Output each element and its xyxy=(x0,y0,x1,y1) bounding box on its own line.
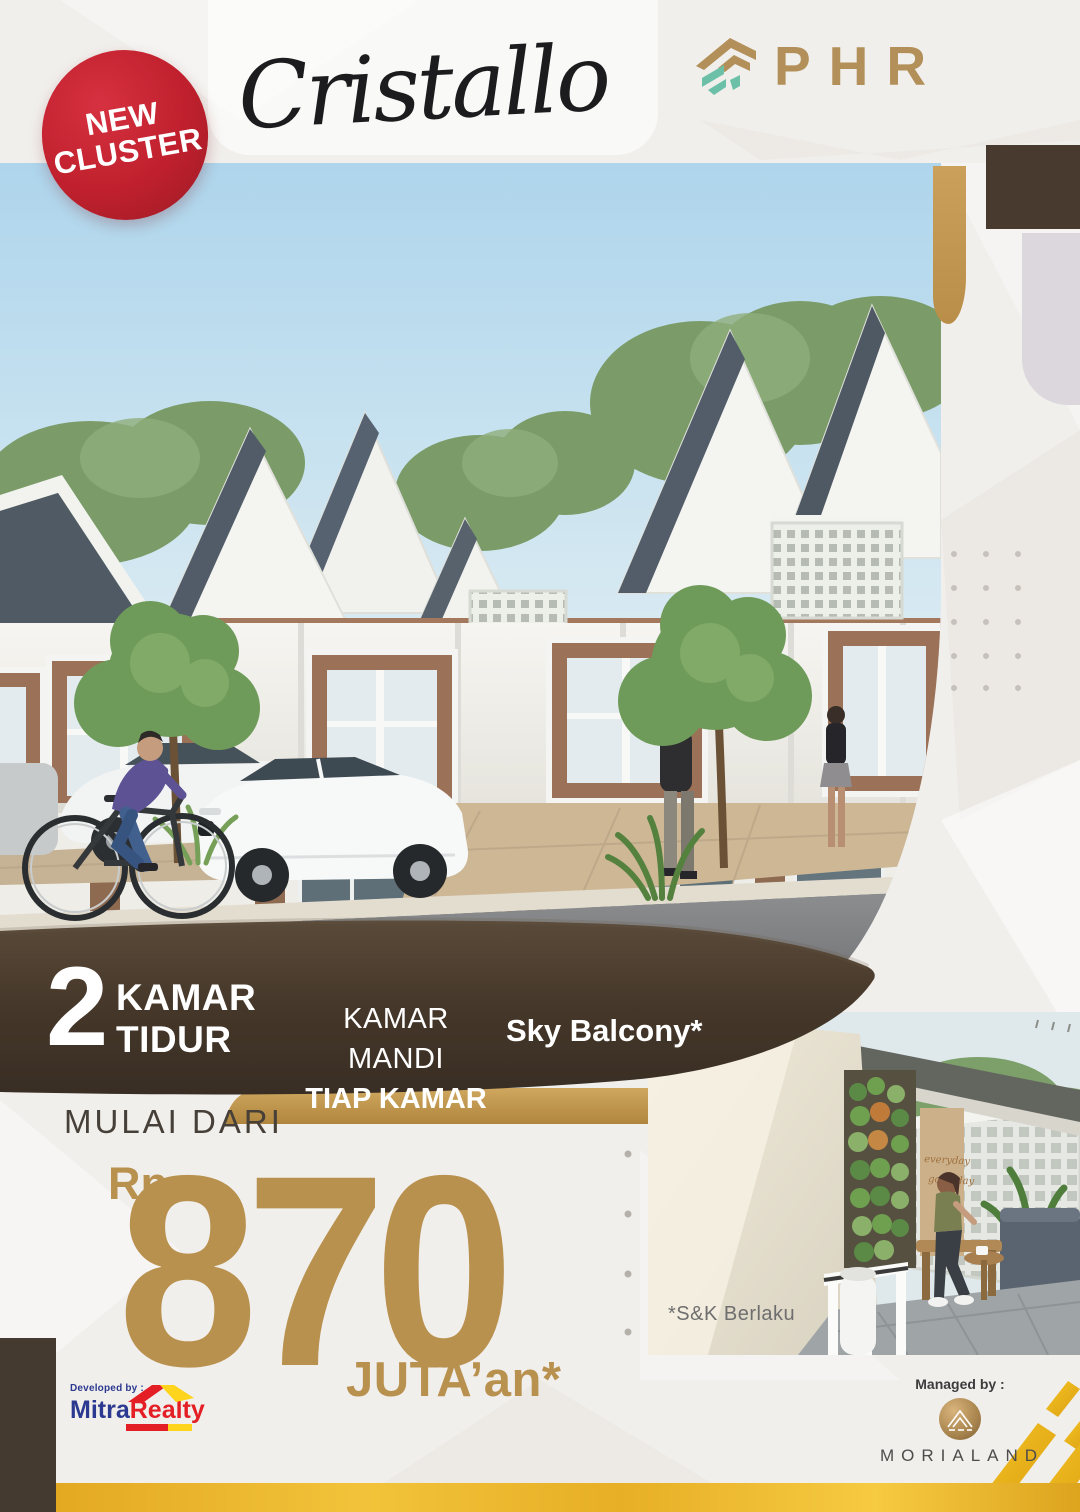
mitrarealty-logo: Developed by : MitraRealty xyxy=(70,1383,220,1431)
deco-gold-ribbon xyxy=(933,166,966,324)
deco-bottom-left-bar xyxy=(0,1338,56,1512)
price-suffix: JUTA’an* xyxy=(346,1352,561,1408)
managed-by-label: Managed by : xyxy=(880,1376,1040,1392)
mitrarealty-roof-icon xyxy=(126,1383,196,1403)
dot-column-pattern xyxy=(622,1148,634,1338)
terms-disclaimer: *S&K Berlaku xyxy=(668,1303,795,1326)
property-flyer: NEW CLUSTER Cristallo PHR xyxy=(0,0,1080,1512)
phr-logo: PHR xyxy=(694,34,944,98)
morialand-logo: Managed by : MORIALAND xyxy=(880,1376,1040,1466)
feature-bathroom: KAMAR MANDI TIAP KAMAR xyxy=(296,999,496,1119)
house-render-illustration xyxy=(0,163,941,1005)
house-render-photo xyxy=(0,163,941,1005)
phr-logo-wordmark: PHR xyxy=(774,34,944,98)
morialand-logo-icon xyxy=(939,1398,981,1440)
gold-bottom-bar xyxy=(56,1483,1080,1512)
deco-brown-rectangle xyxy=(986,145,1080,229)
feature-band: 2 KAMAR TIDUR KAMAR MANDI TIAP KAMAR Sky… xyxy=(0,915,900,1099)
dot-grid-pattern xyxy=(948,548,1038,693)
feature-sky-balcony: Sky Balcony* xyxy=(506,1013,702,1049)
feature-bedrooms-number: 2 xyxy=(46,951,106,1063)
morialand-wordmark: MORIALAND xyxy=(880,1446,1040,1466)
cluster-title: Cristallo xyxy=(235,12,641,163)
feature-bedrooms-label: KAMAR TIDUR xyxy=(116,977,256,1061)
mitrarealty-underline xyxy=(126,1424,192,1431)
phr-logo-icon xyxy=(694,34,760,98)
deco-rounded-shape xyxy=(1022,233,1080,405)
